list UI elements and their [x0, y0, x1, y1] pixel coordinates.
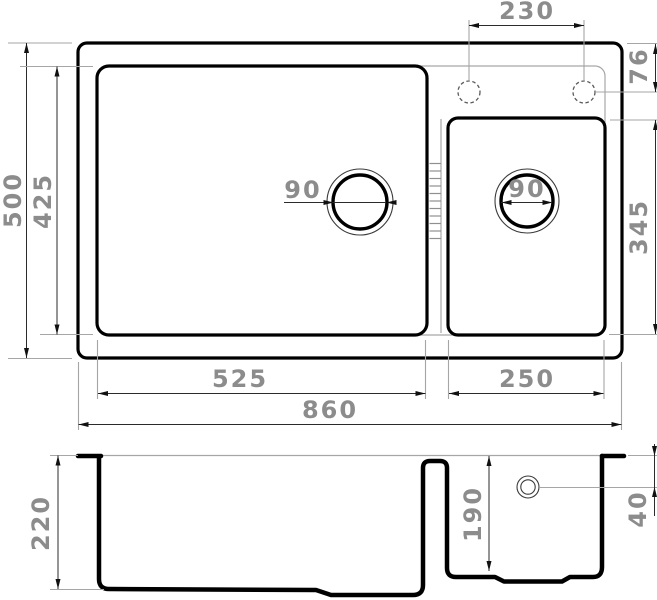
arrow-left [98, 391, 108, 396]
dim-label-main-drain: 90 [284, 176, 321, 204]
dim-small-bowl-depth: 345 [609, 120, 657, 335]
arrow-left [469, 23, 479, 28]
dim-main-bowl-height: 220 [27, 456, 104, 590]
dim-label-small-bowl-depth: 345 [625, 199, 653, 255]
dim-small-drain: 90 [501, 175, 553, 205]
faucet-hole-left [458, 81, 480, 103]
dim-drain-offset: 40 [540, 444, 657, 528]
arrow-up [487, 456, 492, 466]
arrow-up [56, 456, 61, 466]
dim-small-bowl-width: 250 [449, 340, 605, 399]
arrow-left [449, 391, 459, 396]
dim-label-small-bowl-height: 190 [459, 486, 487, 542]
arrow-up [24, 43, 29, 53]
arrow-left [79, 422, 89, 427]
sink-drawing-canvas: 230 500 425 76 [0, 0, 657, 600]
sink-drawing-svg: 230 500 425 76 [0, 0, 657, 600]
dim-label-main-bowl-height: 220 [27, 495, 55, 551]
bowls-profile [99, 456, 602, 595]
arrow-to-drain [652, 487, 657, 497]
section-view: 220 190 40 [27, 444, 657, 595]
arrow-up [55, 67, 60, 77]
dim-label-faucet-offset: 76 [625, 47, 653, 84]
dim-label-main-bowl-depth: 425 [29, 173, 57, 229]
arrow-down [55, 325, 60, 335]
arrow-right [612, 422, 622, 427]
dim-label-small-bowl-width: 250 [499, 365, 555, 393]
dim-main-drain: 90 [284, 176, 397, 205]
divider-grooves [430, 164, 442, 239]
dim-label-main-bowl-width: 525 [212, 365, 268, 393]
dim-faucet-spacing: 230 [469, 0, 584, 80]
dim-label-overall-width: 860 [302, 396, 358, 424]
faucet-hole-right [573, 81, 595, 103]
arrow-down [56, 579, 61, 589]
top-view: 230 500 425 76 [0, 0, 657, 430]
dim-main-bowl-width: 525 [98, 340, 426, 399]
section-drain-inner [521, 480, 535, 494]
arrow-down [487, 561, 492, 571]
arrow-right [416, 391, 426, 396]
main-bowl [97, 66, 427, 335]
arrow-right [574, 23, 584, 28]
dim-label-small-drain: 90 [508, 175, 545, 203]
arrow-to-rim [652, 446, 657, 456]
dim-main-bowl-depth: 425 [20, 67, 93, 335]
dim-label-overall-depth: 500 [0, 172, 27, 228]
dim-small-bowl-height: 190 [459, 456, 492, 571]
dim-label-faucet-spacing: 230 [499, 0, 555, 25]
arrow-right [594, 391, 604, 396]
arrow-down [24, 348, 29, 358]
dim-label-drain-offset: 40 [624, 490, 652, 527]
